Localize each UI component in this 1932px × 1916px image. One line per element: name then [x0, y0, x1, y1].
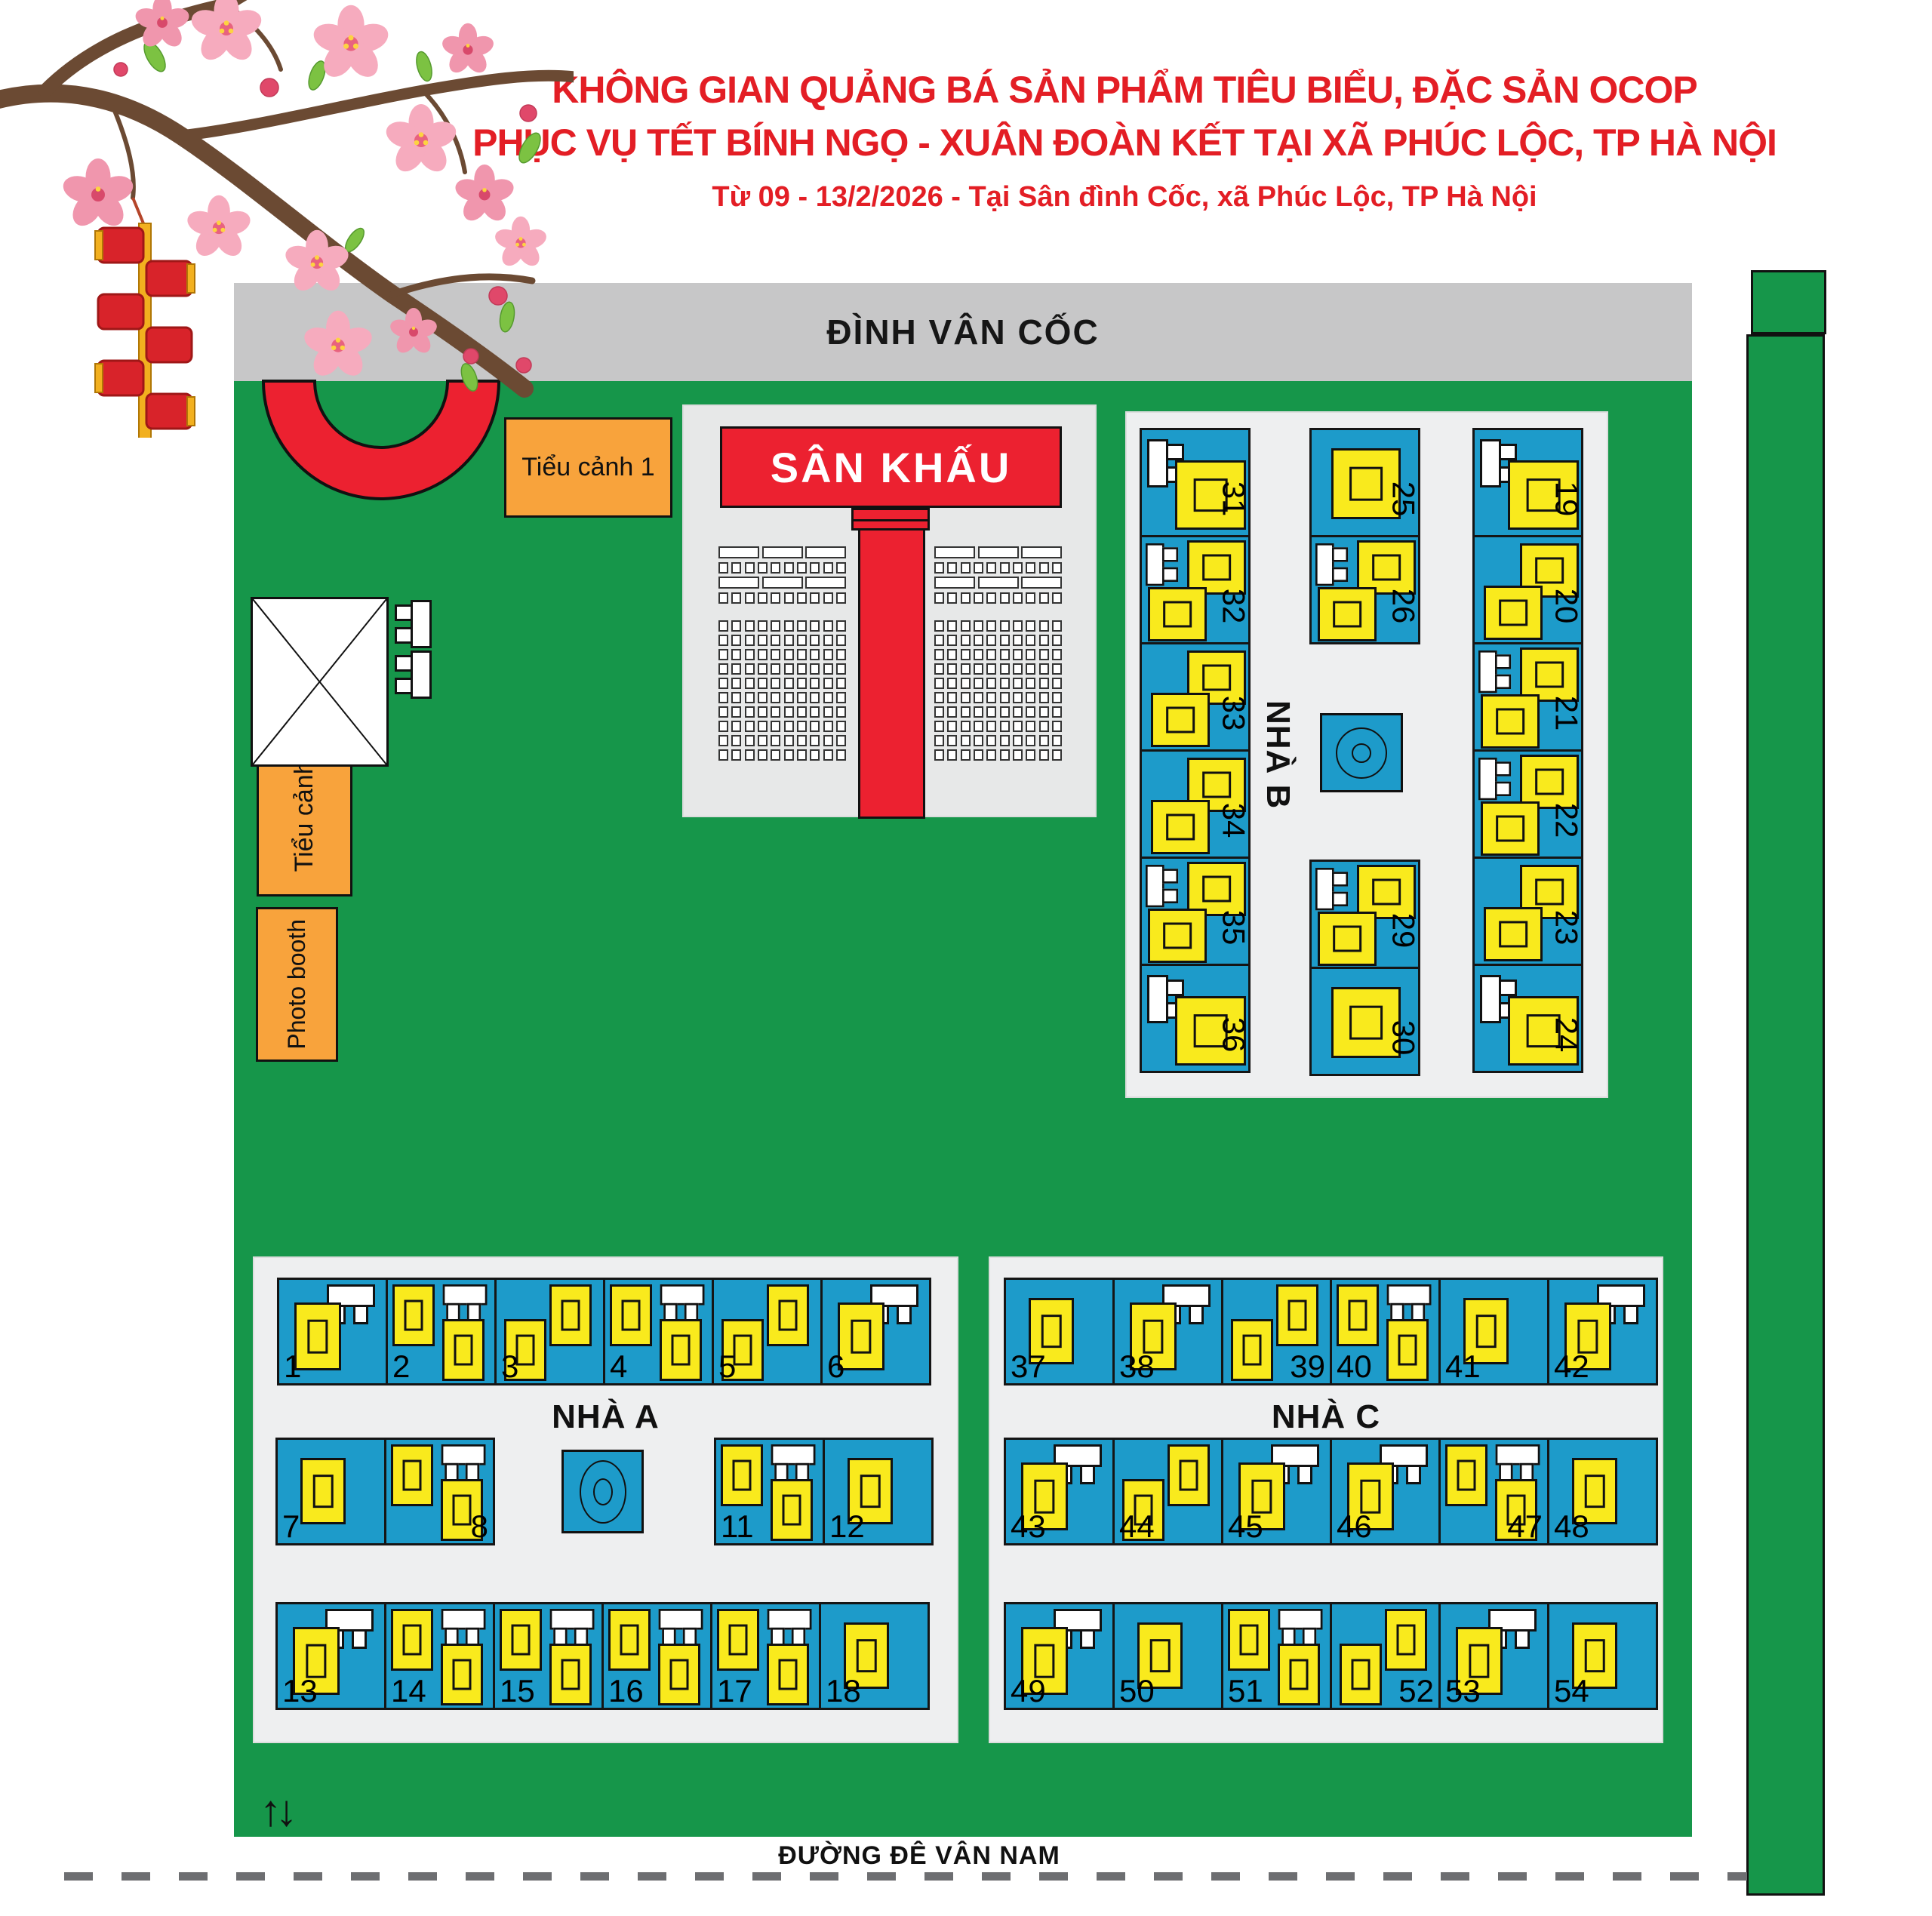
booth-number: 14	[391, 1675, 426, 1708]
booth-number: 4	[610, 1350, 627, 1383]
table-icon	[721, 1444, 763, 1506]
table-icon	[1148, 587, 1207, 641]
table-icon	[549, 1644, 592, 1705]
booth-number: 20	[1550, 589, 1583, 624]
booth-29: 29	[1309, 860, 1420, 969]
booth-6: 6	[820, 1278, 931, 1385]
booth-18: 18	[819, 1602, 930, 1710]
table-icon	[1337, 1284, 1379, 1346]
table-icon	[660, 1319, 702, 1381]
booth-4: 4	[603, 1278, 714, 1385]
table-icon	[500, 1609, 542, 1671]
booth-51: 51	[1221, 1602, 1332, 1710]
table-icon	[1148, 909, 1207, 963]
stage-area: SÂN KHẤU	[682, 404, 1097, 817]
table-icon	[1231, 1319, 1273, 1381]
booth-25: 25	[1309, 428, 1420, 537]
booth-number: 38	[1119, 1350, 1155, 1383]
booth-7: 7	[275, 1438, 386, 1545]
booth-number: 23	[1550, 910, 1583, 946]
booth-42: 42	[1547, 1278, 1658, 1385]
table-icon	[1318, 587, 1377, 641]
booth-number: 21	[1550, 696, 1583, 731]
booth-number: 44	[1119, 1510, 1155, 1543]
booth-number: 8	[471, 1510, 488, 1543]
house-b-area: 313233343536 2526 NHÀ B 2930 19202122232…	[1125, 411, 1608, 1098]
table-icon	[1484, 586, 1543, 640]
house-c-row2: 434445464748	[1004, 1438, 1658, 1545]
mini-scene-1-label: Tiểu cảnh 1	[521, 453, 654, 482]
booth-15: 15	[493, 1602, 604, 1710]
table-icon	[300, 1458, 346, 1524]
booth-number: 49	[1011, 1675, 1046, 1708]
stage-runway	[858, 531, 925, 819]
house-b-label: NHÀ B	[1259, 700, 1297, 809]
booth-number: 19	[1550, 481, 1583, 517]
table-icon	[1278, 1644, 1320, 1705]
table-icon	[717, 1609, 759, 1671]
table-icon	[767, 1284, 809, 1346]
booth-17: 17	[710, 1602, 821, 1710]
booth-number: 33	[1217, 696, 1251, 731]
house-b-left-column: 313233343536	[1140, 428, 1251, 1073]
tent-square	[251, 597, 389, 767]
booth-49: 49	[1004, 1602, 1115, 1710]
house-b-right-column: 192021222324	[1472, 428, 1583, 1073]
photo-booth-label: Photo booth	[283, 919, 311, 1050]
booth-number: 2	[392, 1350, 410, 1383]
table-icon	[1168, 1444, 1210, 1506]
table-icon	[1481, 801, 1540, 856]
booth-number: 16	[608, 1675, 644, 1708]
house-c-row1: 373839404142	[1004, 1278, 1658, 1385]
house-b-middle-column-top: 2526	[1309, 428, 1420, 644]
booth-36: 36	[1140, 964, 1251, 1073]
table-icon	[608, 1609, 651, 1671]
well-icon	[561, 1450, 644, 1533]
table-icon	[1318, 912, 1377, 966]
chairs-icon	[386, 650, 432, 703]
house-a-row2-left: 78	[275, 1438, 495, 1545]
chairs-icon	[386, 600, 432, 653]
stage-banner: SÂN KHẤU	[720, 426, 1062, 508]
booth-41: 41	[1438, 1278, 1549, 1385]
booth-number: 35	[1217, 910, 1251, 946]
booth-13: 13	[275, 1602, 386, 1710]
booth-22: 22	[1472, 749, 1583, 859]
booth-number: 5	[718, 1350, 736, 1383]
booth-16: 16	[601, 1602, 712, 1710]
table-icon	[391, 1609, 433, 1671]
table-icon	[1484, 907, 1543, 961]
booth-5: 5	[712, 1278, 823, 1385]
stage-steps	[851, 508, 930, 531]
booth-3: 3	[494, 1278, 605, 1385]
booth-number: 51	[1228, 1675, 1263, 1708]
house-a-area: 123456 NHÀ A 78 1112 131415161718	[253, 1256, 958, 1743]
booth-number: 46	[1337, 1510, 1372, 1543]
booth-43: 43	[1004, 1438, 1115, 1545]
table-icon	[1340, 1644, 1382, 1705]
booth-number: 50	[1119, 1675, 1155, 1708]
booth-44: 44	[1112, 1438, 1223, 1545]
table-icon	[767, 1644, 809, 1705]
booth-number: 52	[1398, 1675, 1434, 1708]
table-icon	[442, 1319, 485, 1381]
booth-number: 25	[1387, 481, 1420, 517]
photo-booth: Photo booth	[256, 907, 338, 1062]
booth-33: 33	[1140, 642, 1251, 752]
booth-53: 53	[1438, 1602, 1549, 1710]
table-icon	[1276, 1284, 1318, 1346]
house-c-row3: 495051525354	[1004, 1602, 1658, 1710]
booth-number: 13	[282, 1675, 318, 1708]
poster-title-line1: KHÔNG GIAN QUẢNG BÁ SẢN PHẨM TIÊU BIỂU, …	[423, 63, 1826, 116]
table-icon	[392, 1284, 435, 1346]
booth-39: 39	[1221, 1278, 1332, 1385]
booth-37: 37	[1004, 1278, 1115, 1385]
booth-number: 7	[282, 1510, 300, 1543]
house-c-label: NHÀ C	[990, 1398, 1662, 1436]
right-green-bar-top	[1751, 270, 1826, 334]
booth-45: 45	[1221, 1438, 1332, 1545]
poster-header: KHÔNG GIAN QUẢNG BÁ SẢN PHẨM TIÊU BIỂU, …	[423, 63, 1826, 214]
booth-14: 14	[384, 1602, 495, 1710]
booth-number: 53	[1445, 1675, 1481, 1708]
entrance-arrows: ↑↓	[260, 1785, 291, 1836]
booth-40: 40	[1330, 1278, 1441, 1385]
stage-label: SÂN KHẤU	[771, 443, 1012, 492]
booth-52: 52	[1330, 1602, 1441, 1710]
table-icon	[1228, 1609, 1270, 1671]
table-icon	[549, 1284, 592, 1346]
booth-number: 48	[1554, 1510, 1589, 1543]
poster-title-line2: PHỤC VỤ TẾT BÍNH NGỌ - XUÂN ĐOÀN KẾT TẠI…	[423, 116, 1826, 169]
table-icon	[1445, 1444, 1487, 1506]
booth-30: 30	[1309, 967, 1420, 1076]
chairs-icon	[1478, 650, 1518, 697]
booth-23: 23	[1472, 857, 1583, 966]
booth-2: 2	[386, 1278, 497, 1385]
chairs-icon	[1315, 543, 1355, 590]
booth-50: 50	[1112, 1602, 1223, 1710]
house-a-row3: 131415161718	[275, 1602, 930, 1710]
house-a-row2-right: 1112	[714, 1438, 934, 1545]
booth-number: 39	[1290, 1350, 1325, 1383]
site-plan-poster: KHÔNG GIAN QUẢNG BÁ SẢN PHẨM TIÊU BIỂU, …	[0, 0, 1932, 1916]
booth-number: 30	[1387, 1020, 1420, 1056]
table-icon	[1151, 693, 1210, 747]
blossom-decoration	[0, 0, 574, 438]
audience-seats-right	[934, 546, 1062, 764]
booth-number: 32	[1217, 589, 1251, 624]
booth-number: 54	[1554, 1675, 1589, 1708]
booth-number: 6	[827, 1350, 844, 1383]
table-icon	[1385, 1609, 1427, 1671]
firecracker-icon	[95, 198, 195, 438]
house-c-area: 373839404142 NHÀ C 434445464748 49505152…	[989, 1256, 1663, 1743]
booth-54: 54	[1547, 1602, 1658, 1710]
house-a-row1: 123456	[277, 1278, 931, 1385]
booth-1: 1	[277, 1278, 388, 1385]
chairs-icon	[1315, 868, 1355, 915]
booth-number: 41	[1445, 1350, 1481, 1383]
booth-number: 26	[1387, 589, 1420, 624]
poster-subtitle: Từ 09 - 13/2/2026 - Tại Sân đình Cốc, xã…	[423, 181, 1826, 214]
table-icon	[441, 1644, 483, 1705]
booth-number: 1	[284, 1350, 301, 1383]
audience-seats-left	[718, 546, 846, 764]
table-icon	[610, 1284, 652, 1346]
booth-number: 36	[1217, 1017, 1251, 1053]
booth-number: 34	[1217, 803, 1251, 838]
booth-19: 19	[1472, 428, 1583, 537]
booth-46: 46	[1330, 1438, 1441, 1545]
booth-31: 31	[1140, 428, 1251, 537]
chairs-icon	[1478, 758, 1518, 804]
booth-number: 22	[1550, 803, 1583, 838]
booth-21: 21	[1472, 642, 1583, 752]
table-icon	[658, 1644, 700, 1705]
table-icon	[391, 1444, 433, 1506]
booth-number: 45	[1228, 1510, 1263, 1543]
booth-number: 17	[717, 1675, 752, 1708]
booth-48: 48	[1547, 1438, 1658, 1545]
booth-26: 26	[1309, 535, 1420, 644]
booth-number: 18	[826, 1675, 861, 1708]
booth-number: 43	[1011, 1510, 1046, 1543]
booth-11: 11	[714, 1438, 825, 1545]
booth-number: 3	[501, 1350, 518, 1383]
table-icon	[1151, 800, 1210, 854]
booth-8: 8	[384, 1438, 495, 1545]
booth-35: 35	[1140, 857, 1251, 966]
booth-number: 40	[1337, 1350, 1372, 1383]
booth-number: 42	[1554, 1350, 1589, 1383]
booth-number: 31	[1217, 481, 1251, 517]
booth-12: 12	[823, 1438, 934, 1545]
booth-number: 11	[721, 1510, 754, 1543]
booth-24: 24	[1472, 964, 1583, 1073]
table-icon	[771, 1479, 813, 1541]
table-icon	[1481, 694, 1540, 749]
road-dashed-line	[64, 1872, 1747, 1881]
right-green-bar	[1746, 334, 1825, 1896]
booth-38: 38	[1112, 1278, 1223, 1385]
house-b-middle-column-bottom: 2930	[1309, 860, 1420, 1076]
booth-number: 47	[1507, 1510, 1543, 1543]
booth-number: 24	[1550, 1017, 1583, 1053]
table-icon	[1386, 1319, 1429, 1381]
chairs-icon	[1146, 865, 1186, 912]
booth-47: 47	[1438, 1438, 1549, 1545]
booth-number: 29	[1387, 913, 1420, 949]
house-a-label: NHÀ A	[254, 1398, 957, 1436]
booth-number: 37	[1011, 1350, 1046, 1383]
booth-number: 12	[829, 1510, 865, 1543]
booth-32: 32	[1140, 535, 1251, 644]
road-label: ĐƯỜNG ĐÊ VÂN NAM	[723, 1841, 1115, 1871]
booth-number: 15	[500, 1675, 535, 1708]
booth-20: 20	[1472, 535, 1583, 644]
booth-34: 34	[1140, 749, 1251, 859]
well-icon	[1320, 713, 1403, 792]
chairs-icon	[1146, 543, 1186, 590]
temple-label: ĐÌNH VÂN CỐC	[826, 312, 1099, 352]
